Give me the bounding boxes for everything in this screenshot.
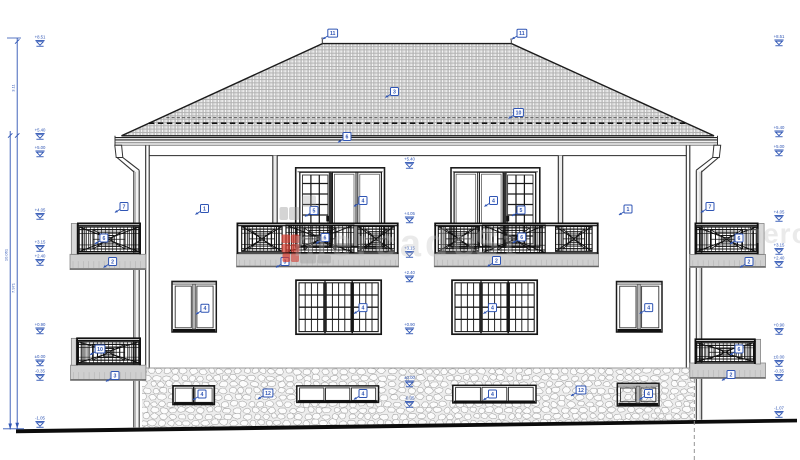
svg-text:6: 6 [346,134,349,140]
svg-text:1: 1 [203,206,206,212]
svg-text:3.11: 3.11 [11,83,16,91]
svg-text:mercado: mercado [293,223,479,265]
svg-text:+5.40: +5.40 [774,125,785,130]
svg-text:5: 5 [313,208,316,214]
svg-text:+3.15: +3.15 [35,239,46,244]
svg-text:+0.90: +0.90 [774,322,785,327]
svg-text:±0.00: ±0.00 [774,354,785,359]
svg-text:+4.05: +4.05 [774,209,785,214]
svg-text:±0.00: ±0.00 [404,375,415,380]
svg-text:4: 4 [647,391,650,397]
svg-text:-0.35: -0.35 [405,395,415,400]
svg-text:10: 10 [97,347,103,353]
svg-text:3: 3 [393,89,396,95]
svg-text:7.971: 7.971 [11,282,16,293]
svg-text:11: 11 [519,31,525,37]
svg-text:+4.05: +4.05 [404,211,415,216]
svg-text:4: 4 [492,198,495,204]
svg-text:4: 4 [647,306,650,312]
svg-text:1: 1 [627,207,630,213]
svg-text:4: 4 [362,198,365,204]
svg-text:3: 3 [114,373,117,379]
svg-text:2: 2 [730,372,733,378]
svg-text:±0.00: ±0.00 [35,354,46,359]
svg-text:-0.35: -0.35 [774,368,784,373]
svg-text:+2.40: +2.40 [35,253,46,258]
svg-text:+5.40: +5.40 [35,127,46,132]
svg-text:+5.40: +5.40 [404,156,415,161]
svg-text:+5.00: +5.00 [35,145,46,150]
svg-text:-1.07: -1.07 [774,405,784,410]
svg-text:-1.05: -1.05 [35,415,45,420]
svg-text:+2.40: +2.40 [774,255,785,260]
svg-text:4: 4 [362,306,365,312]
svg-text:7: 7 [123,204,126,210]
svg-text:St: St [474,223,520,265]
svg-text:11: 11 [330,31,336,37]
svg-text:10.061: 10.061 [4,248,9,261]
svg-text:7: 7 [709,204,712,210]
svg-text:5: 5 [520,208,523,214]
svg-text:6: 6 [738,347,741,353]
svg-text:+5.00: +5.00 [774,144,785,149]
svg-text:+4.05: +4.05 [35,207,46,212]
svg-text:nero: nero [745,218,800,249]
svg-text:6: 6 [738,236,741,242]
svg-text:12: 12 [265,391,271,397]
svg-text:6: 6 [520,235,523,241]
svg-text:+8.51: +8.51 [35,34,46,39]
svg-text:+0.90: +0.90 [35,322,46,327]
svg-text:+8.51: +8.51 [774,34,785,39]
svg-text:-0.35: -0.35 [35,368,45,373]
svg-text:+2.40: +2.40 [404,270,415,275]
svg-text:4: 4 [491,306,494,312]
svg-text:4: 4 [201,392,204,398]
svg-text:+0.90: +0.90 [404,322,415,327]
svg-text:6: 6 [102,236,105,242]
svg-text:2: 2 [748,259,751,265]
svg-text:4: 4 [491,392,494,398]
svg-text:10: 10 [516,110,522,116]
svg-text:4: 4 [203,306,206,312]
svg-text:2: 2 [111,259,114,265]
svg-text:4: 4 [362,391,365,397]
svg-text:12: 12 [578,388,584,394]
